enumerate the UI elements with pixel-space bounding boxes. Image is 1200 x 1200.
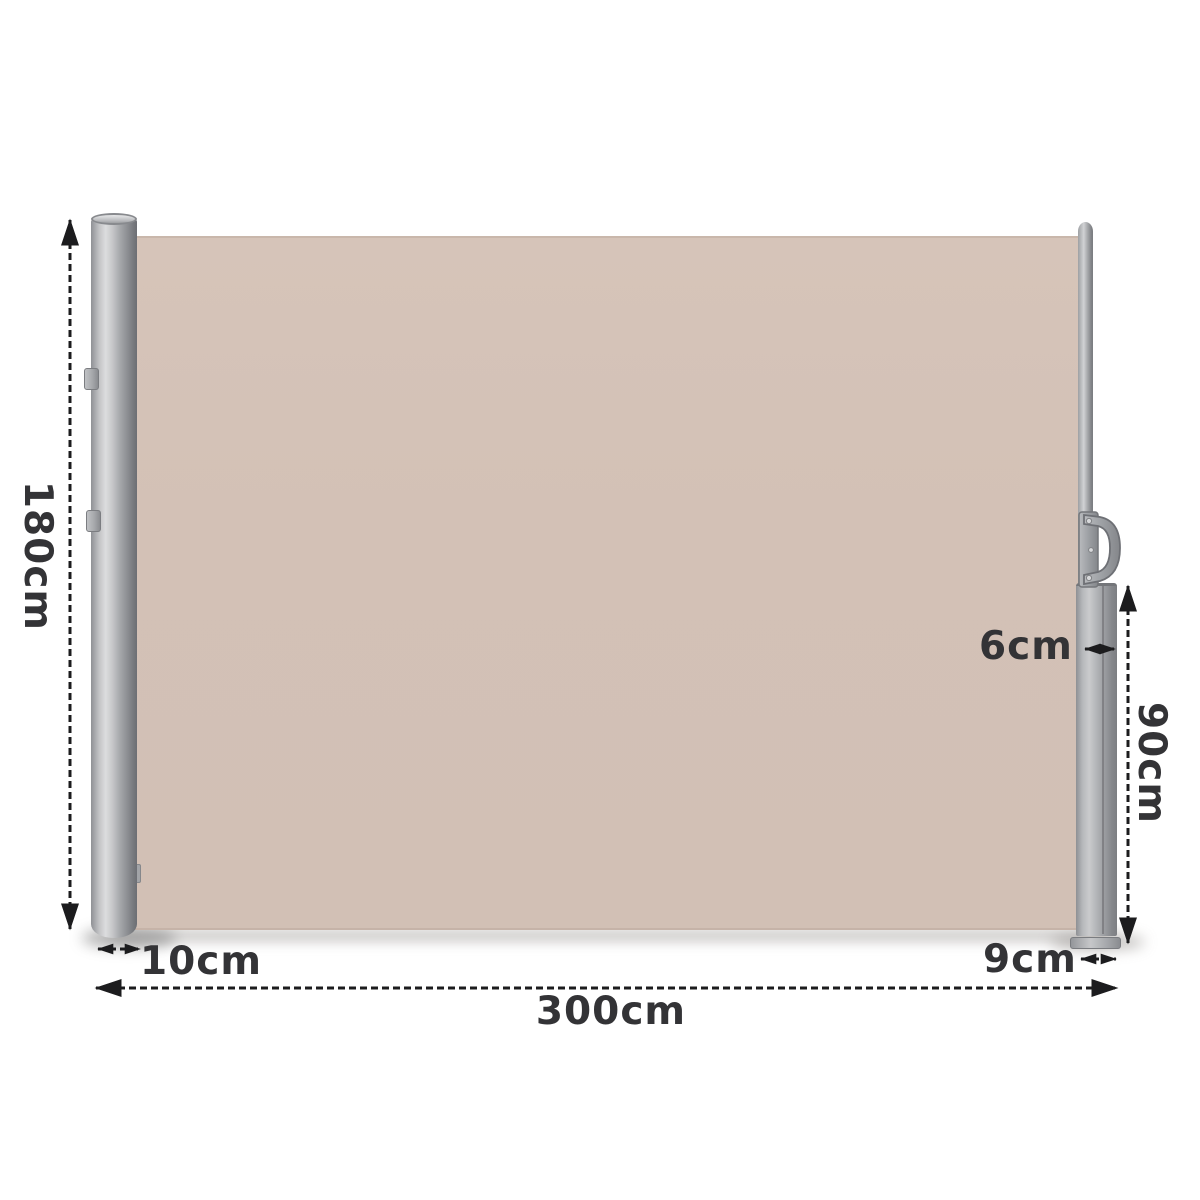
total-length-label: 300cm [526,990,696,1034]
awning-dimension-diagram: 180cm 90cm 10cm 300cm 9cm 6cm [0,0,1200,1200]
pole-depth-label: 10cm [116,940,286,984]
cassette-depth-label: 6cm [941,625,1111,669]
cassette-height-label: 90cm [1129,678,1173,848]
base-depth-label: 9cm [945,938,1115,982]
total-height-label: 180cm [15,471,59,641]
